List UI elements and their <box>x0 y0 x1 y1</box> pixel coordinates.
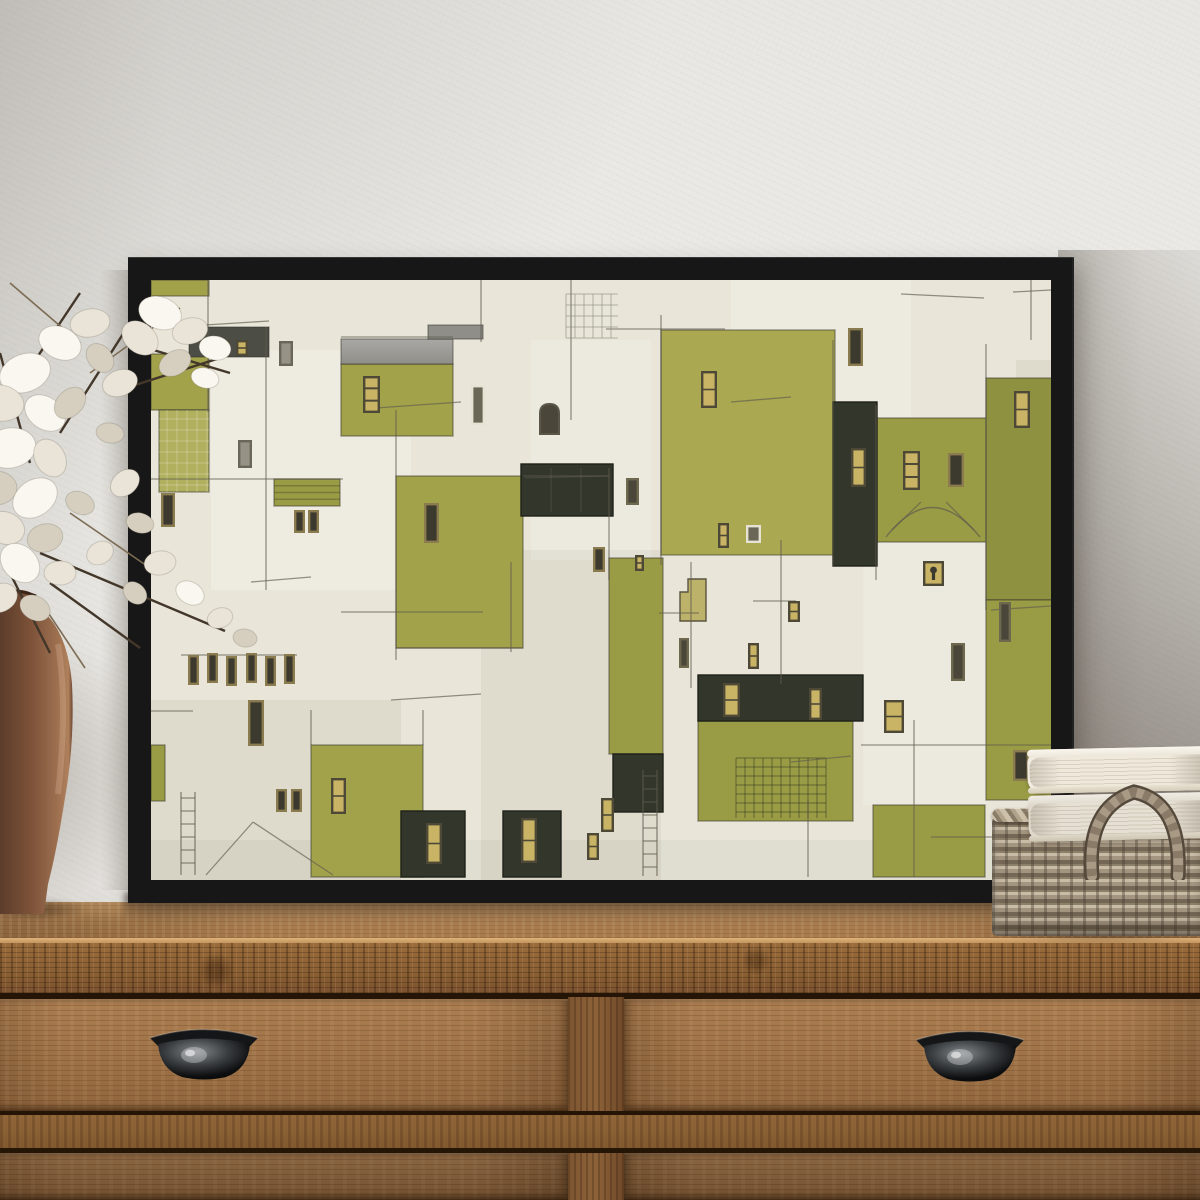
cup-handle-left[interactable] <box>142 1026 266 1082</box>
dresser-stile <box>568 997 624 1200</box>
dresser-top-edge <box>0 943 1200 993</box>
lunaria-flowers <box>0 253 290 673</box>
room-scene <box>0 0 1200 1200</box>
drawer-right-lower[interactable] <box>624 1153 1200 1200</box>
dresser-rail <box>0 1115 1200 1148</box>
basket-handle <box>1072 764 1198 880</box>
drawer-left[interactable] <box>0 999 568 1111</box>
drawer-left-lower[interactable] <box>0 1153 568 1200</box>
cup-handle-right[interactable] <box>908 1028 1032 1084</box>
